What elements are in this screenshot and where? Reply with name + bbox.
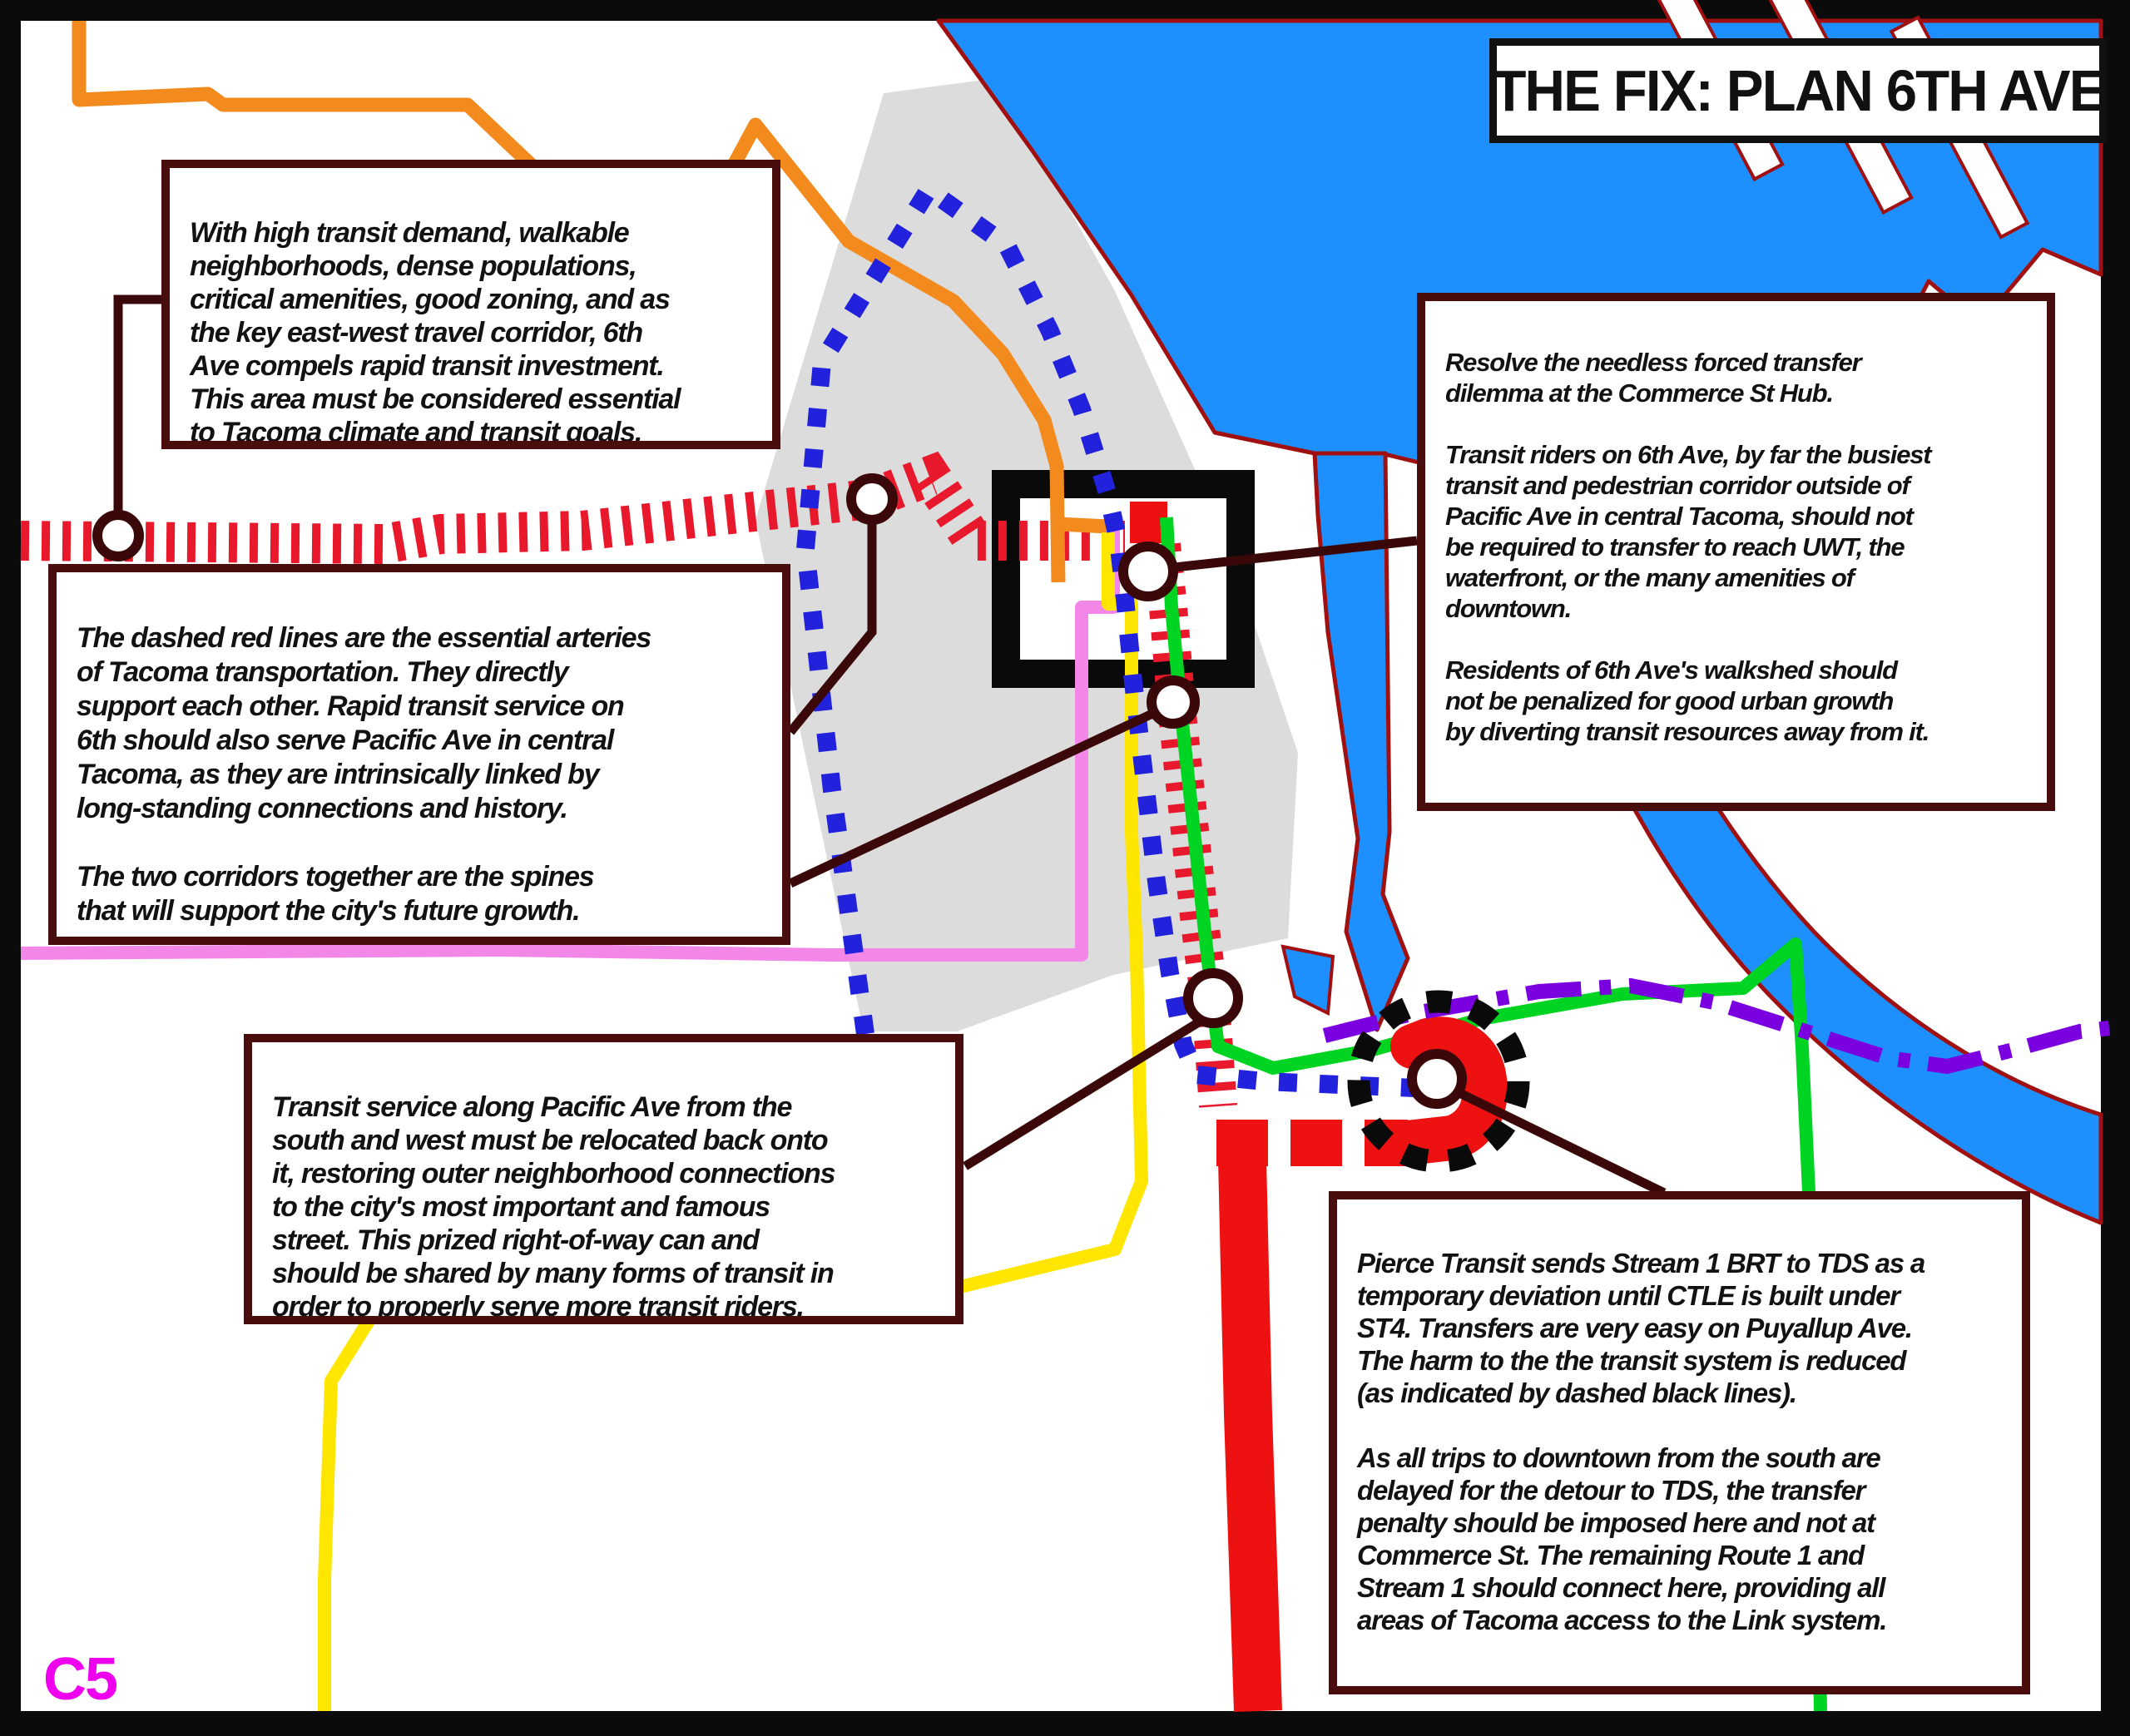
callout-marker-sixth-ave-east [851,478,893,520]
annotation-box-right: Resolve the needless forced transfer dil… [1417,293,2055,811]
annotation-text-mid-left: The dashed red lines are the essential a… [57,606,782,943]
annotation-box-mid-left: The dashed red lines are the essential a… [48,564,790,945]
annotation-box-bottom-right: Pierce Transit sends Stream 1 BRT to TDS… [1329,1191,2030,1694]
callout-marker-tds [1412,1054,1462,1104]
page-label: C5 [43,1645,116,1714]
callout-marker-pacific-ave [1152,680,1195,724]
annotation-text-bottom-left: Transit service along Pacific Ave from t… [252,1076,955,1324]
page-title: THE FIX: PLAN 6TH AVE [1492,57,2104,124]
annotation-text-right: Resolve the needless forced transfer dil… [1425,332,2047,762]
transit-plan-poster: THE FIX: PLAN 6TH AVE With high transit … [0,0,2130,1736]
annotation-box-top-left: With high transit demand, walkable neigh… [161,160,780,449]
callout-marker-sixth-ave-west [97,515,139,556]
annotation-text-bottom-right: Pierce Transit sends Stream 1 BRT to TDS… [1337,1232,2022,1651]
red-stream1-solid-line [1241,1123,1258,1711]
callout-marker-commerce-hub [1123,547,1173,596]
callout-marker-corridor-south [1188,973,1238,1023]
annotation-box-bottom-left: Transit service along Pacific Ave from t… [244,1034,963,1324]
annotation-text-top-left: With high transit demand, walkable neigh… [170,201,772,449]
orange-route-hub-stub [1058,524,1108,527]
title-box: THE FIX: PLAN 6TH AVE [1489,38,2107,143]
